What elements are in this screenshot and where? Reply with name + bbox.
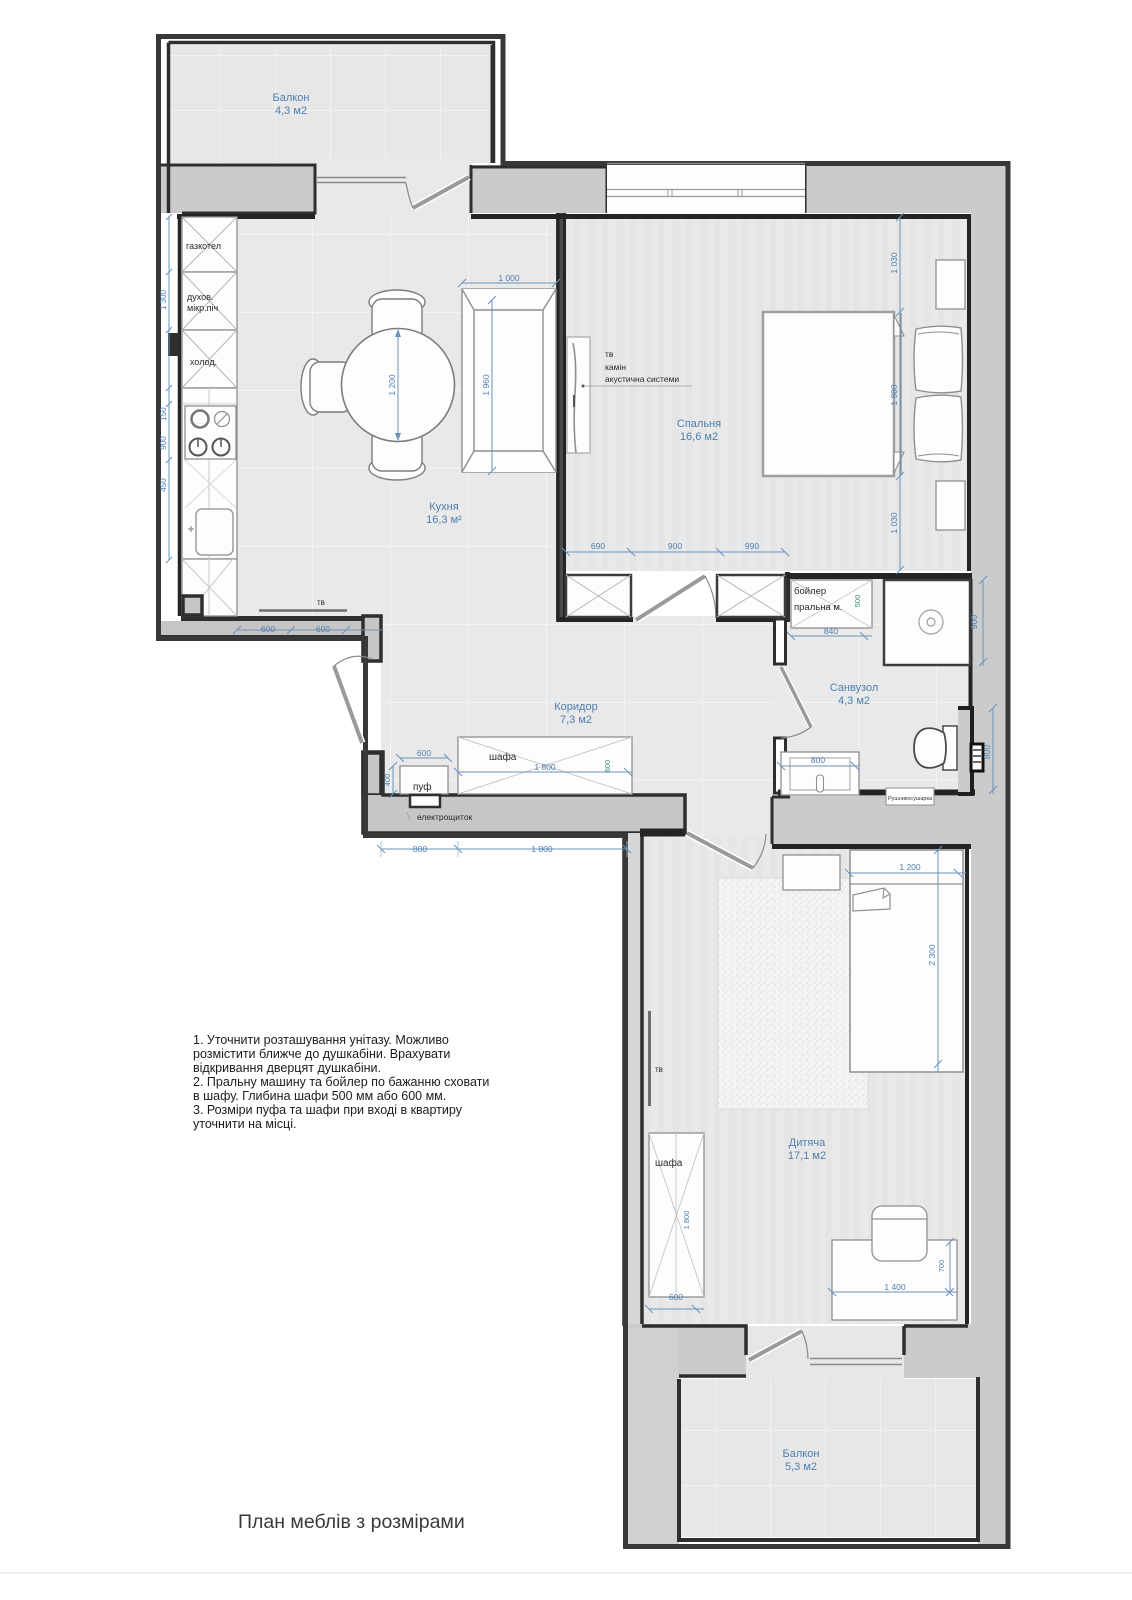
svg-text:17,1 м2: 17,1 м2 [788,1150,826,1162]
svg-text:16,6 м2: 16,6 м2 [680,431,718,443]
svg-text:розмістити ближче до душкабіни: розмістити ближче до душкабіни. Врахуват… [193,1047,450,1061]
svg-text:4,3 м2: 4,3 м2 [275,105,307,117]
svg-text:холод.: холод. [190,357,217,367]
svg-text:відкривання дверцят душкабіни.: відкривання дверцят душкабіни. [193,1061,381,1075]
svg-text:1 200: 1 200 [899,862,921,872]
svg-text:1 400: 1 400 [884,1282,906,1292]
svg-text:840: 840 [824,626,838,636]
svg-text:1 000: 1 000 [498,273,520,283]
svg-text:900: 900 [668,541,682,551]
svg-text:16,3 м²: 16,3 м² [426,514,462,526]
svg-text:500: 500 [853,595,862,608]
svg-text:в шафу. Глибина шафи 500 мм аб: в шафу. Глибина шафи 500 мм або 600 мм. [193,1089,446,1103]
svg-text:150: 150 [159,407,168,421]
svg-text:450: 450 [159,478,168,492]
svg-text:900: 900 [969,615,979,629]
svg-text:пральна м.: пральна м. [794,602,843,613]
svg-text:Балкон: Балкон [273,92,310,104]
svg-text:1 300: 1 300 [159,289,168,310]
svg-text:2. Пральну машину та бойлер по: 2. Пральну машину та бойлер по бажанню с… [193,1075,489,1089]
svg-text:духов.: духов. [187,292,213,302]
svg-text:шафа: шафа [489,751,517,763]
svg-text:тв: тв [605,349,614,359]
svg-text:пуф: пуф [413,781,432,793]
svg-text:Спальня: Спальня [677,418,721,430]
svg-text:акустична системи: акустична системи [605,374,679,384]
svg-text:600: 600 [261,624,275,634]
svg-text:План меблів з розмірами: План меблів з розмірами [238,1511,465,1533]
svg-text:бойлер: бойлер [794,586,826,597]
svg-text:4,3 м2: 4,3 м2 [838,695,870,707]
svg-text:7,3 м2: 7,3 м2 [560,714,592,726]
svg-text:електрощиток: електрощиток [417,812,473,822]
svg-text:1 980: 1 980 [889,384,899,406]
svg-text:Санвузол: Санвузол [830,682,879,694]
svg-text:1 800: 1 800 [534,762,556,772]
svg-text:800: 800 [811,755,825,765]
svg-text:1 030: 1 030 [889,512,899,534]
svg-text:1 960: 1 960 [481,374,491,396]
svg-text:5,3 м2: 5,3 м2 [785,1461,817,1473]
svg-text:газкотел: газкотел [186,241,221,251]
svg-text:2 300: 2 300 [927,944,937,966]
svg-text:700: 700 [937,1260,946,1273]
svg-text:Рушникосушарка: Рушникосушарка [888,796,933,802]
svg-text:1 800: 1 800 [531,844,553,854]
svg-text:3. Розміри пуфа та шафи при вх: 3. Розміри пуфа та шафи при вході в квар… [193,1103,463,1117]
svg-text:1. Уточнити розташування уніта: 1. Уточнити розташування унітазу. Можлив… [193,1033,449,1047]
svg-text:990: 990 [745,541,759,551]
svg-text:камін: камін [605,362,626,372]
svg-text:600: 600 [669,1292,683,1302]
svg-text:600: 600 [417,748,431,758]
svg-text:Балкон: Балкон [783,1448,820,1460]
svg-text:400: 400 [383,774,392,787]
svg-text:Кухня: Кухня [429,501,458,513]
svg-text:мікр.піч: мікр.піч [187,303,219,313]
svg-text:1 030: 1 030 [889,252,899,274]
svg-text:тв: тв [655,1065,663,1074]
svg-text:690: 690 [591,541,605,551]
svg-text:шафа: шафа [655,1157,683,1169]
svg-text:600: 600 [316,624,330,634]
svg-text:тв: тв [317,598,325,607]
svg-text:600: 600 [603,760,612,773]
svg-text:800: 800 [413,844,427,854]
svg-text:Коридор: Коридор [554,701,597,713]
svg-text:800: 800 [982,745,992,759]
svg-text:уточнити на місці.: уточнити на місці. [193,1117,296,1131]
svg-text:1 200: 1 200 [387,374,397,396]
svg-text:900: 900 [159,436,168,450]
svg-text:1 800: 1 800 [682,1211,691,1230]
svg-text:Дитяча: Дитяча [789,1137,826,1149]
